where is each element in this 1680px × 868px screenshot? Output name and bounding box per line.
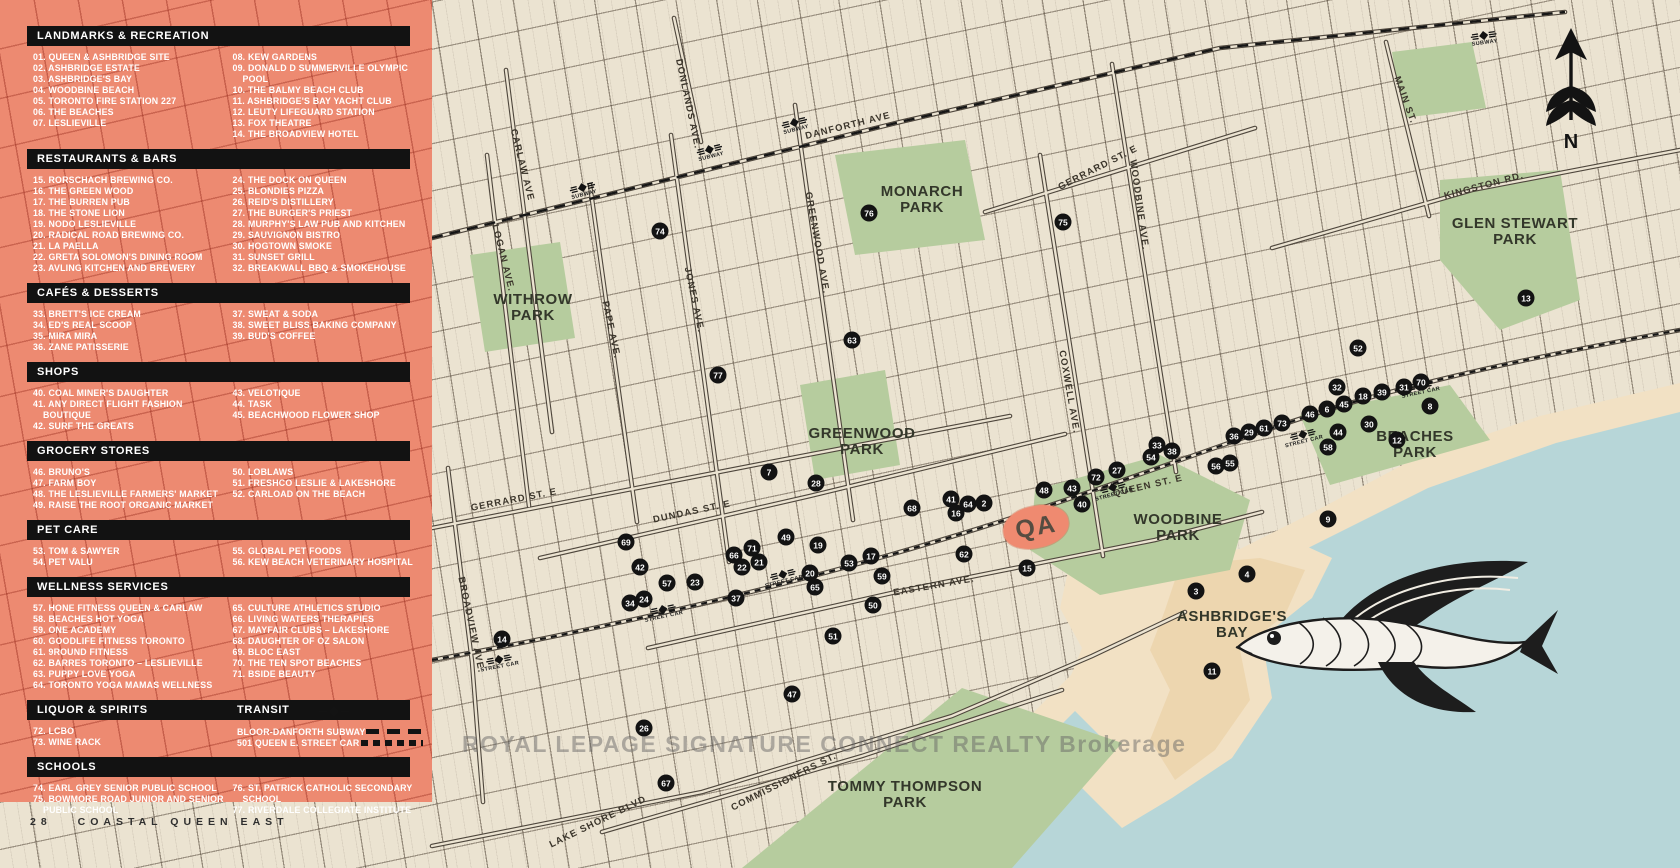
park-label: WITHROW PARK (483, 292, 583, 324)
legend-item: 47. FARM BOY (33, 478, 233, 489)
map-marker: 53 (841, 555, 858, 572)
legend-item: 52. CARLOAD ON THE BEACH (233, 489, 433, 500)
map-marker: 42 (632, 559, 649, 576)
legend-column: 37. SWEAT & SODA38. SWEET BLISS BAKING C… (233, 309, 433, 353)
map-marker: 2 (976, 495, 993, 512)
map-marker: 77 (710, 367, 727, 384)
map-marker: 51 (825, 628, 842, 645)
transit-line-label: 501 QUEEN E. STREET CAR (237, 738, 359, 748)
map-marker: 27 (1109, 462, 1126, 479)
legend: LANDMARKS & RECREATION01. QUEEN & ASHBRI… (0, 26, 432, 816)
ttc-logo (319, 704, 349, 724)
legend-column: 01. QUEEN & ASHBRIDGE SITE02. ASHBRIDGE … (33, 52, 233, 140)
legend-item: 44. TASK (233, 399, 433, 410)
legend-item: 15. RORSCHACH BREWING CO. (33, 175, 233, 186)
transit-line: BLOOR-DANFORTH SUBWAY (237, 726, 423, 737)
legend-column: 55. GLOBAL PET FOODS56. KEW BEACH VETERI… (233, 546, 433, 568)
legend-item: 61. 9ROUND FITNESS (33, 647, 233, 658)
legend-section-title: PET CARE (27, 520, 410, 540)
legend-section-title: RESTAURANTS & BARS (27, 149, 410, 169)
map-marker: 8 (1422, 398, 1439, 415)
legend-columns: 53. TOM & SAWYER54. PET VALU55. GLOBAL P… (33, 546, 432, 568)
map-marker: 16 (948, 505, 965, 522)
map-marker: 49 (778, 529, 795, 546)
map-marker: 7 (761, 464, 778, 481)
legend-item: 35. MIRA MIRA (33, 331, 233, 342)
brokerage-watermark: ROYAL LEPAGE SIGNATURE CONNECT REALTY Br… (462, 731, 1186, 758)
legend-column: 65. CULTURE ATHLETICS STUDIO66. LIVING W… (233, 603, 433, 691)
park-label: GREENWOOD PARK (802, 426, 922, 458)
map-marker: 30 (1361, 416, 1378, 433)
legend-item: 72. LCBO (33, 726, 237, 737)
map-marker: 72 (1088, 469, 1105, 486)
legend-column: 53. TOM & SAWYER54. PET VALU (33, 546, 233, 568)
map-marker: 11 (1204, 663, 1221, 680)
map-marker: 6 (1319, 401, 1336, 418)
legend-item: 43. VELOTIQUE (233, 388, 433, 399)
legend-item: 29. SAUVIGNON BISTRO (233, 230, 433, 241)
legend-item: 23. AVLING KITCHEN AND BREWERY (33, 263, 233, 274)
legend-item: 27. THE BURGER'S PRIEST (233, 208, 433, 219)
legend-item: 48. THE LESLIEVILLE FARMERS' MARKET (33, 489, 233, 500)
map-marker: 17 (863, 548, 880, 565)
compass-north-label: N (1528, 131, 1614, 154)
legend-column: 50. LOBLAWS51. FRESHCO LESLIE & LAKESHOR… (233, 467, 433, 511)
map-marker: 75 (1055, 214, 1072, 231)
legend-columns: 01. QUEEN & ASHBRIDGE SITE02. ASHBRIDGE … (33, 52, 432, 140)
map-marker: 43 (1064, 480, 1081, 497)
legend-item: 62. BARRES TORONTO – LESLIEVILLE (33, 658, 233, 669)
map-marker: 3 (1188, 583, 1205, 600)
legend-item: 66. LIVING WATERS THERAPIES (233, 614, 433, 625)
map-marker: 47 (784, 686, 801, 703)
legend-item: 75. BOWMORE ROAD JUNIOR AND SENIOR PUBLI… (33, 794, 233, 816)
map-marker: 44 (1330, 424, 1347, 441)
legend-item: 70. THE TEN SPOT BEACHES (233, 658, 433, 669)
map-marker: 19 (810, 537, 827, 554)
legend-item: 12. LEUTY LIFEGUARD STATION (233, 107, 433, 118)
transit-title: TRANSIT (237, 700, 290, 720)
map-marker: 63 (844, 332, 861, 349)
legend-section-title: SCHOOLS (27, 757, 410, 777)
legend-item: 63. PUPPY LOVE YOGA (33, 669, 233, 680)
legend-item: 40. COAL MINER'S DAUGHTER (33, 388, 233, 399)
legend-section-title: GROCERY STORES (27, 441, 410, 461)
map-marker: 24 (636, 591, 653, 608)
map-marker: 15 (1019, 560, 1036, 577)
legend-item: 06. THE BEACHES (33, 107, 233, 118)
map-marker: 28 (808, 475, 825, 492)
legend-item: 38. SWEET BLISS BAKING COMPANY (233, 320, 433, 331)
transit-line-label: BLOOR-DANFORTH SUBWAY (237, 727, 366, 737)
park-label: GLEN STEWART PARK (1440, 216, 1590, 248)
transit-line: 501 QUEEN E. STREET CAR (237, 737, 423, 748)
map-marker: 46 (1302, 406, 1319, 423)
legend-columns: 15. RORSCHACH BREWING CO.16. THE GREEN W… (33, 175, 432, 274)
legend-columns: 40. COAL MINER'S DAUGHTER41. ANY DIRECT … (33, 388, 432, 432)
legend-item: 74. EARL GREY SENIOR PUBLIC SCHOOL (33, 783, 233, 794)
legend-item: 25. BLONDIES PIZZA (233, 186, 433, 197)
legend-item: 56. KEW BEACH VETERINARY HOSPITAL (233, 557, 433, 568)
legend-section: GROCERY STORES46. BRUNO'S47. FARM BOY48.… (0, 441, 432, 511)
legend-item: 10. THE BALMY BEACH CLUB (233, 85, 433, 96)
park-label: MONARCH PARK (867, 184, 977, 216)
map-marker: 12 (1389, 432, 1406, 449)
subway-line (432, 12, 1565, 238)
map-marker: 39 (1374, 384, 1391, 401)
map-marker: 61 (1256, 420, 1273, 437)
legend-item: 20. RADICAL ROAD BREWING CO. (33, 230, 233, 241)
legend-item: 46. BRUNO'S (33, 467, 233, 478)
legend-columns: 74. EARL GREY SENIOR PUBLIC SCHOOL75. BO… (33, 783, 432, 816)
map-marker: 65 (807, 579, 824, 596)
map-marker: 74 (652, 223, 669, 240)
map-marker: 21 (751, 554, 768, 571)
map-marker: 48 (1036, 482, 1053, 499)
page-title: COASTAL QUEEN EAST (78, 816, 289, 828)
map-marker: 69 (618, 534, 635, 551)
legend-item: 30. HOGTOWN SMOKE (233, 241, 433, 252)
legend-item: 64. TORONTO YOGA MAMAS WELLNESS (33, 680, 233, 691)
legend-item: 41. ANY DIRECT FLIGHT FASHION BOUTIQUE (33, 399, 233, 421)
map-marker: 9 (1320, 511, 1337, 528)
map-marker: 38 (1164, 443, 1181, 460)
legend-section: PET CARE53. TOM & SAWYER54. PET VALU55. … (0, 520, 432, 568)
legend-item: 73. WINE RACK (33, 737, 237, 748)
map-marker: 76 (861, 205, 878, 222)
legend-item: 01. QUEEN & ASHBRIDGE SITE (33, 52, 233, 63)
map-marker: 13 (1518, 290, 1535, 307)
legend-item: 17. THE BURREN PUB (33, 197, 233, 208)
north-arrow-icon (1528, 28, 1614, 132)
transit-line-style-dots (361, 740, 423, 746)
legend-item: 16. THE GREEN WOOD (33, 186, 233, 197)
legend-item: 32. BREAKWALL BBQ & SMOKEHOUSE (233, 263, 433, 274)
legend-item: 08. KEW GARDENS (233, 52, 433, 63)
legend-item: 26. REID'S DISTILLERY (233, 197, 433, 208)
legend-item: 14. THE BROADVIEW HOTEL (233, 129, 433, 140)
legend-column: 72. LCBO73. WINE RACK (33, 726, 237, 748)
legend-column: 08. KEW GARDENS09. DONALD D SUMMERVILLE … (233, 52, 433, 140)
legend-column: 74. EARL GREY SENIOR PUBLIC SCHOOL75. BO… (33, 783, 233, 816)
legend-column: 46. BRUNO'S47. FARM BOY48. THE LESLIEVIL… (33, 467, 233, 511)
legend-item: 21. LA PAELLA (33, 241, 233, 252)
page-footer: 28 COASTAL QUEEN EAST (30, 816, 289, 828)
park-label: TOMMY THOMPSON PARK (825, 779, 985, 811)
legend-item: 76. ST. PATRICK CATHOLIC SECONDARY SCHOO… (233, 783, 433, 805)
legend-item: 33. BRETT'S ICE CREAM (33, 309, 233, 320)
map-marker: 58 (1320, 439, 1337, 456)
legend-columns: 46. BRUNO'S47. FARM BOY48. THE LESLIEVIL… (33, 467, 432, 511)
map-marker: 54 (1143, 449, 1160, 466)
map-marker: 52 (1350, 340, 1367, 357)
map-marker: 67 (658, 775, 675, 792)
map-marker: 40 (1074, 496, 1091, 513)
legend-section: SHOPS40. COAL MINER'S DAUGHTER41. ANY DI… (0, 362, 432, 432)
legend-column: 40. COAL MINER'S DAUGHTER41. ANY DIRECT … (33, 388, 233, 432)
map-marker: 22 (734, 559, 751, 576)
legend-item: 77. RIVERDALE COLLEGIATE INSTITUTE (233, 805, 433, 816)
legend-column: 33. BRETT'S ICE CREAM34. ED'S REAL SCOOP… (33, 309, 233, 353)
legend-column: 57. HONE FITNESS QUEEN & CARLAW58. BEACH… (33, 603, 233, 691)
legend-section: LIQUOR & SPIRITSTRANSIT72. LCBO73. WINE … (0, 700, 432, 748)
legend-item: 31. SUNSET GRILL (233, 252, 433, 263)
legend-item: 09. DONALD D SUMMERVILLE OLYMPIC POOL (233, 63, 433, 85)
ttc-wing-icon (319, 706, 349, 717)
legend-item: 68. DAUGHTER OF OZ SALON (233, 636, 433, 647)
map-marker: 18 (1355, 388, 1372, 405)
park-label: BEACHES PARK (1360, 429, 1470, 461)
legend-column: 24. THE DOCK ON QUEEN25. BLONDIES PIZZA2… (233, 175, 433, 274)
legend-columns: 33. BRETT'S ICE CREAM34. ED'S REAL SCOOP… (33, 309, 432, 353)
park-label: WOODBINE PARK (1118, 512, 1238, 544)
flying-fish-illustration (1228, 552, 1558, 727)
map-marker: 14 (494, 631, 511, 648)
legend-item: 42. SURF THE GREATS (33, 421, 233, 432)
legend-item: 69. BLOC EAST (233, 647, 433, 658)
map-marker: 57 (659, 575, 676, 592)
legend-item: 39. BUD'S COFFEE (233, 331, 433, 342)
legend-item: 03. ASHBRIDGE'S BAY (33, 74, 233, 85)
legend-section: CAFÉS & DESSERTS33. BRETT'S ICE CREAM34.… (0, 283, 432, 353)
legend-item: 45. BEACHWOOD FLOWER SHOP (233, 410, 433, 421)
legend-item: 67. MAYFAIR CLUBS – LAKESHORE (233, 625, 433, 636)
legend-item: 55. GLOBAL PET FOODS (233, 546, 433, 557)
map-marker: 73 (1274, 415, 1291, 432)
legend-item: 37. SWEAT & SODA (233, 309, 433, 320)
legend-section-title: CAFÉS & DESSERTS (27, 283, 410, 303)
legend-item: 51. FRESHCO LESLIE & LAKESHORE (233, 478, 433, 489)
legend-item: 11. ASHBRIDGE'S BAY YACHT CLUB (233, 96, 433, 107)
legend-item: 53. TOM & SAWYER (33, 546, 233, 557)
legend-item: 57. HONE FITNESS QUEEN & CARLAW (33, 603, 233, 614)
map-marker: 23 (687, 574, 704, 591)
legend-item: 22. GRETA SOLOMON'S DINING ROOM (33, 252, 233, 263)
legend-sidebar: LANDMARKS & RECREATION01. QUEEN & ASHBRI… (0, 0, 432, 802)
legend-column: 76. ST. PATRICK CATHOLIC SECONDARY SCHOO… (233, 783, 433, 816)
map-marker: 59 (874, 568, 891, 585)
map-marker: 68 (904, 500, 921, 517)
legend-item: 36. ZANE PATISSERIE (33, 342, 233, 353)
legend-item: 18. THE STONE LION (33, 208, 233, 219)
legend-section: RESTAURANTS & BARS15. RORSCHACH BREWING … (0, 149, 432, 274)
brochure-map-page: WITHROW PARKMONARCH PARKGREENWOOD PARKWO… (0, 0, 1680, 868)
legend-item: 34. ED'S REAL SCOOP (33, 320, 233, 331)
legend-section-title: LIQUOR & SPIRITSTRANSIT (27, 700, 410, 720)
legend-columns: 57. HONE FITNESS QUEEN & CARLAW58. BEACH… (33, 603, 432, 691)
legend-item: 04. WOODBINE BEACH (33, 85, 233, 96)
map-marker: 55 (1222, 455, 1239, 472)
legend-section: SCHOOLS74. EARL GREY SENIOR PUBLIC SCHOO… (0, 757, 432, 816)
legend-columns: 72. LCBO73. WINE RACKBLOOR-DANFORTH SUBW… (33, 726, 432, 748)
legend-item: 24. THE DOCK ON QUEEN (233, 175, 433, 186)
legend-item: 19. NODO LESLIEVILLE (33, 219, 233, 230)
legend-section: WELLNESS SERVICES57. HONE FITNESS QUEEN … (0, 577, 432, 691)
map-marker: 31 (1396, 379, 1413, 396)
legend-item: 58. BEACHES HOT YOGA (33, 614, 233, 625)
map-marker: 70 (1413, 374, 1430, 391)
transit-line-style-dashes (366, 729, 424, 734)
legend-item: 28. MURPHY'S LAW PUB AND KITCHEN (233, 219, 433, 230)
compass-rose: N (1528, 28, 1614, 158)
map-marker: 50 (865, 597, 882, 614)
legend-item: 71. BSIDE BEAUTY (233, 669, 433, 680)
legend-item: 60. GOODLIFE FITNESS TORONTO (33, 636, 233, 647)
legend-item: 02. ASHBRIDGE ESTATE (33, 63, 233, 74)
legend-section-title: SHOPS (27, 362, 410, 382)
legend-item: 50. LOBLAWS (233, 467, 433, 478)
map-marker: 62 (956, 546, 973, 563)
legend-item: 59. ONE ACADEMY (33, 625, 233, 636)
legend-section: LANDMARKS & RECREATION01. QUEEN & ASHBRI… (0, 26, 432, 140)
map-marker: 45 (1336, 396, 1353, 413)
legend-column: 15. RORSCHACH BREWING CO.16. THE GREEN W… (33, 175, 233, 274)
map-marker: 37 (728, 590, 745, 607)
legend-section-title: WELLNESS SERVICES (27, 577, 410, 597)
legend-item: 07. LESLIEVILLE (33, 118, 233, 129)
legend-item: 54. PET VALU (33, 557, 233, 568)
legend-column: 43. VELOTIQUE44. TASK45. BEACHWOOD FLOWE… (233, 388, 433, 432)
legend-item: 05. TORONTO FIRE STATION 227 (33, 96, 233, 107)
transit-legend: BLOOR-DANFORTH SUBWAY501 QUEEN E. STREET… (237, 726, 423, 748)
legend-item: 65. CULTURE ATHLETICS STUDIO (233, 603, 433, 614)
legend-item: 49. RAISE THE ROOT ORGANIC MARKET (33, 500, 233, 511)
legend-section-title: LANDMARKS & RECREATION (27, 26, 410, 46)
page-number: 28 (30, 816, 52, 828)
map-marker: 32 (1329, 379, 1346, 396)
legend-item: 13. FOX THEATRE (233, 118, 433, 129)
